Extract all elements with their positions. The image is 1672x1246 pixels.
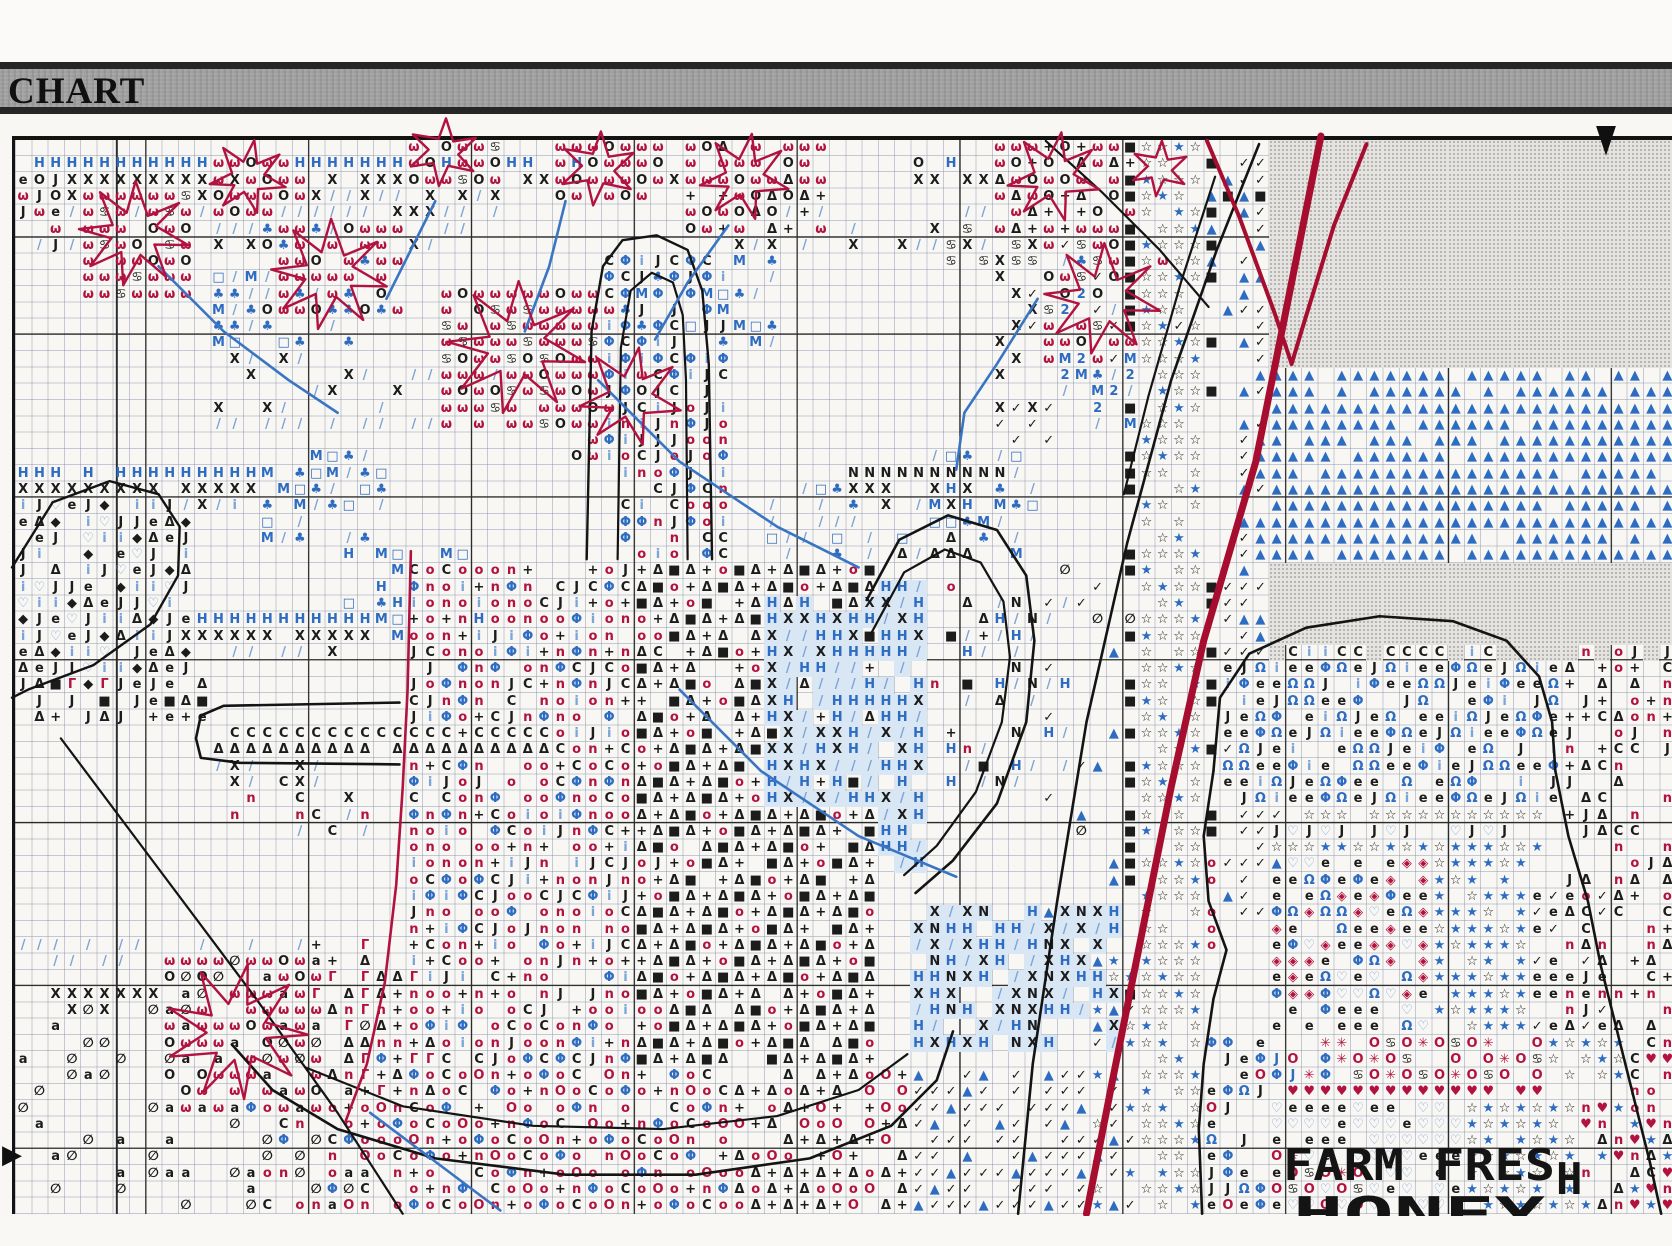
stitch-symbol: X [308, 628, 324, 644]
stitch-symbol: e [1269, 1019, 1285, 1035]
stitch-symbol: / [1041, 612, 1057, 628]
stitch-symbol: O [471, 173, 487, 189]
stitch-symbol [1350, 221, 1366, 237]
stitch-symbol: □ [341, 498, 357, 514]
stitch-symbol: ω [259, 1003, 275, 1019]
stitch-symbol: / [308, 775, 324, 791]
stitch-symbol: O [569, 173, 585, 189]
stitch-symbol: n [406, 921, 422, 937]
stitch-symbol: Ω [1236, 1084, 1252, 1100]
stitch-symbol: o [438, 645, 454, 661]
stitch-symbol: Δ [731, 1003, 747, 1019]
stitch-symbol: O [796, 1117, 812, 1133]
stitch-symbol: Δ [682, 1052, 698, 1068]
stitch-symbol: X [764, 628, 780, 644]
stitch-symbol: n [959, 742, 975, 758]
stitch-symbol: n [666, 531, 682, 547]
stitch-symbol: Δ [959, 547, 975, 563]
stitch-symbol: H [927, 970, 943, 986]
stitch-symbol: C [1594, 759, 1610, 775]
stitch-symbol: O [178, 254, 194, 270]
stitch-symbol: o [422, 1166, 438, 1182]
stitch-symbol: Ω [1464, 661, 1480, 677]
stitch-symbol: ω [503, 368, 519, 384]
stitch-symbol: o [943, 580, 959, 596]
stitch-symbol: i [1252, 775, 1268, 791]
stitch-symbol: ◈ [1285, 987, 1301, 1003]
stitch-symbol: i [1464, 645, 1480, 661]
stitch-symbol: X [145, 987, 161, 1003]
stitch-symbol: e [1350, 970, 1366, 986]
stitch-symbol: J [487, 889, 503, 905]
stitch-symbol: J [113, 677, 129, 693]
stitch-symbol: ■ [634, 661, 650, 677]
stitch-symbol: + [666, 1052, 682, 1068]
stitch-symbol: X [813, 645, 829, 661]
stitch-symbol: / [780, 205, 796, 221]
stitch-symbol: / [422, 417, 438, 433]
stitch-symbol [1350, 140, 1366, 156]
stitch-symbol: ★ [1138, 173, 1154, 189]
stitch-symbol: N [1008, 596, 1024, 612]
stitch-symbol: C [503, 1133, 519, 1149]
stitch-symbol: ω [764, 173, 780, 189]
stitch-symbol: X [129, 173, 145, 189]
stitch-symbol: e [1317, 759, 1333, 775]
stitch-symbol: e [1334, 742, 1350, 758]
stitch-symbol: ♡ [145, 596, 161, 612]
stitch-symbol: ♋ [1041, 303, 1057, 319]
stitch-symbol: ☆ [1464, 1019, 1480, 1035]
stitch-symbol: C [1610, 742, 1626, 758]
stitch-symbol: ■ [1252, 189, 1268, 205]
stitch-symbol: Δ [634, 775, 650, 791]
stitch-symbol: ♋ [1073, 270, 1089, 286]
stitch-symbol: X [210, 482, 226, 498]
stitch-symbol [1480, 238, 1496, 254]
stitch-symbol: Δ [845, 921, 861, 937]
stitch-symbol: + [634, 759, 650, 775]
stitch-symbol: ω [145, 189, 161, 205]
stitch-symbol: ✓ [1252, 335, 1268, 351]
stitch-symbol: X [796, 612, 812, 628]
stitch-symbol: ★ [1578, 1198, 1594, 1214]
stitch-symbol: e [80, 580, 96, 596]
stitch-symbol [1529, 205, 1545, 221]
stitch-symbol: ■ [1122, 694, 1138, 710]
stitch-symbol: ☆ [1155, 270, 1171, 286]
stitch-symbol: Γ [96, 677, 112, 693]
stitch-symbol: o [455, 710, 471, 726]
stitch-symbol: o [455, 873, 471, 889]
stitch-symbol: ☆ [1187, 580, 1203, 596]
stitch-symbol: + [682, 645, 698, 661]
stitch-symbol: 2 [1073, 352, 1089, 368]
stitch-symbol: Δ [780, 1052, 796, 1068]
stitch-symbol: e [1513, 677, 1529, 693]
stitch-symbol: □ [389, 547, 405, 563]
stitch-symbol: ♣ [210, 319, 226, 335]
stitch-symbol: Δ [1594, 1198, 1610, 1214]
stitch-symbol: ♡ [1415, 1019, 1431, 1035]
stitch-symbol: ▲ [1480, 482, 1496, 498]
stitch-symbol: ✓ [1122, 1133, 1138, 1149]
stitch-symbol: J [585, 726, 601, 742]
stitch-symbol: C [569, 661, 585, 677]
stitch-symbol: a [178, 987, 194, 1003]
stitch-symbol: o [536, 759, 552, 775]
stitch-symbol: ✓ [1008, 400, 1024, 416]
stitch-symbol: N [976, 905, 992, 921]
stitch-symbol: H [959, 1003, 975, 1019]
stitch-symbol: + [862, 1052, 878, 1068]
stitch-symbol: ☆ [1513, 1117, 1529, 1133]
stitch-symbol: / [976, 645, 992, 661]
stitch-symbol: ■ [845, 1035, 861, 1051]
stitch-symbol: e [1383, 1101, 1399, 1117]
stitch-symbol [1643, 612, 1659, 628]
stitch-symbol: ■ [862, 628, 878, 644]
stitch-symbol: C [650, 482, 666, 498]
stitch-symbol: e [1350, 661, 1366, 677]
stitch-symbol: ■ [666, 889, 682, 905]
stitch-symbol: ω [162, 270, 178, 286]
stitch-symbol: ✓ [1041, 1101, 1057, 1117]
stitch-symbol: ■ [650, 580, 666, 596]
stitch-symbol: ☆ [1187, 840, 1203, 856]
stitch-symbol: ☆ [1187, 270, 1203, 286]
stitch-symbol: ♥ [1659, 1198, 1672, 1214]
stitch-symbol: O [552, 287, 568, 303]
stitch-symbol: / [862, 726, 878, 742]
stitch-symbol: ∅ [308, 1035, 324, 1051]
stitch-symbol: Δ [666, 1003, 682, 1019]
stitch-symbol: Ω [1252, 661, 1268, 677]
stitch-symbol: ☆ [1138, 905, 1154, 921]
stitch-symbol: C [422, 1117, 438, 1133]
stitch-symbol [1578, 335, 1594, 351]
stitch-symbol: / [894, 856, 910, 872]
stitch-symbol: Δ [829, 1003, 845, 1019]
stitch-symbol [1659, 270, 1672, 286]
stitch-symbol: X [292, 775, 308, 791]
stitch-symbol: ☆ [1171, 221, 1187, 237]
stitch-symbol [1529, 645, 1545, 661]
stitch-symbol: X [341, 791, 357, 807]
stitch-symbol: + [748, 905, 764, 921]
stitch-symbol: n [601, 628, 617, 644]
stitch-symbol: ✓ [1073, 1182, 1089, 1198]
stitch-symbol: H [894, 840, 910, 856]
stitch-symbol: ♡ [1366, 1133, 1382, 1149]
stitch-symbol: / [275, 645, 291, 661]
stitch-symbol: ♋ [1301, 1166, 1317, 1182]
stitch-symbol: i [715, 400, 731, 416]
stitch-symbol: ✳ [1366, 1052, 1382, 1068]
stitch-symbol: J [1301, 824, 1317, 840]
stitch-symbol: H [943, 742, 959, 758]
stitch-symbol: + [813, 1084, 829, 1100]
stitch-symbol: C [1415, 645, 1431, 661]
stitch-symbol: ▲ [1464, 531, 1480, 547]
stitch-symbol: O [1024, 173, 1040, 189]
stitch-symbol: ■ [976, 759, 992, 775]
stitch-symbol: ♋ [943, 254, 959, 270]
stitch-symbol: Δ [780, 1133, 796, 1149]
stitch-symbol: ♥ [1399, 1084, 1415, 1100]
stitch-symbol: Φ [634, 1166, 650, 1182]
stitch-symbol: o [487, 1133, 503, 1149]
stitch-symbol: ■ [764, 856, 780, 872]
stitch-symbol: n [471, 694, 487, 710]
stitch-symbol: ☆ [1171, 563, 1187, 579]
stitch-symbol: Δ [1562, 661, 1578, 677]
stitch-symbol: ■ [1122, 287, 1138, 303]
stitch-symbol: ■ [1203, 156, 1219, 172]
stitch-symbol [1285, 335, 1301, 351]
stitch-symbol [1627, 612, 1643, 628]
stitch-symbol [1594, 645, 1610, 661]
stitch-symbol: ▲ [1610, 482, 1626, 498]
stitch-symbol: o [715, 694, 731, 710]
stitch-symbol: Ω [1317, 970, 1333, 986]
stitch-symbol: C [552, 1117, 568, 1133]
stitch-symbol: o [585, 1003, 601, 1019]
stitch-symbol: Δ [666, 873, 682, 889]
stitch-symbol: e [1301, 791, 1317, 807]
stitch-symbol: ω [129, 287, 145, 303]
stitch-symbol: H [227, 612, 243, 628]
stitch-symbol: ω [373, 254, 389, 270]
stitch-symbol: Δ [715, 791, 731, 807]
stitch-symbol: ☆ [1562, 1166, 1578, 1182]
stitch-symbol: ♥ [1643, 1182, 1659, 1198]
stitch-symbol: Δ [748, 205, 764, 221]
stitch-symbol: ◆ [80, 677, 96, 693]
stitch-symbol: ω [1106, 221, 1122, 237]
stitch-symbol [1431, 303, 1447, 319]
stitch-symbol: + [666, 791, 682, 807]
stitch-symbol: ☆ [1155, 335, 1171, 351]
stitch-symbol: Δ [813, 1166, 829, 1182]
stitch-symbol: / [813, 677, 829, 693]
stitch-symbol: X [1073, 921, 1089, 937]
stitch-symbol: ✓ [1594, 889, 1610, 905]
stitch-symbol [1578, 580, 1594, 596]
stitch-symbol: O [1464, 1035, 1480, 1051]
stitch-symbol: ☆ [1187, 140, 1203, 156]
stitch-symbol: Δ [845, 1068, 861, 1084]
stitch-symbol: ▲ [1415, 531, 1431, 547]
stitch-symbol: + [699, 954, 715, 970]
stitch-symbol: ▲ [1496, 433, 1512, 449]
stitch-symbol [1513, 352, 1529, 368]
stitch-symbol: ■ [1122, 449, 1138, 465]
stitch-symbol: + [1562, 677, 1578, 693]
stitch-symbol: o [536, 1035, 552, 1051]
stitch-symbol [1480, 189, 1496, 205]
stitch-symbol: O [455, 352, 471, 368]
stitch-symbol: ▲ [1562, 498, 1578, 514]
stitch-symbol: O [1350, 1052, 1366, 1068]
stitch-symbol [1301, 189, 1317, 205]
stitch-symbol: ω [162, 287, 178, 303]
stitch-symbol: ■ [1203, 238, 1219, 254]
stitch-symbol: Ω [1431, 677, 1447, 693]
stitch-symbol: ✓ [1529, 1019, 1545, 1035]
stitch-symbol: / [894, 661, 910, 677]
stitch-symbol: Δ [731, 840, 747, 856]
stitch-symbol [1350, 189, 1366, 205]
stitch-symbol: i [145, 498, 161, 514]
stitch-symbol: o [715, 498, 731, 514]
stitch-symbol: H [113, 156, 129, 172]
stitch-symbol: X [666, 173, 682, 189]
stitch-symbol: O [878, 1101, 894, 1117]
stitch-symbol: n [1610, 873, 1626, 889]
stitch-symbol: ∅ [96, 1068, 112, 1084]
stitch-symbol: Δ [682, 759, 698, 775]
stitch-symbol: M [259, 466, 275, 482]
stitch-symbol: ✓ [1252, 319, 1268, 335]
stitch-symbol: Δ [731, 580, 747, 596]
stitch-symbol: ◈ [1383, 921, 1399, 937]
stitch-symbol: ▲ [1415, 466, 1431, 482]
stitch-symbol [1431, 173, 1447, 189]
stitch-symbol: ■ [666, 563, 682, 579]
stitch-symbol: ★ [1187, 352, 1203, 368]
stitch-symbol: e [15, 173, 31, 189]
stitch-symbol [1334, 596, 1350, 612]
stitch-symbol: ω [243, 1052, 259, 1068]
stitch-symbol: ☆ [1155, 938, 1171, 954]
stitch-symbol: + [601, 645, 617, 661]
stitch-symbol: O [1513, 1052, 1529, 1068]
stitch-symbol: ✓ [1106, 1101, 1122, 1117]
stitch-symbol: n [536, 856, 552, 872]
stitch-symbol: n [585, 775, 601, 791]
stitch-symbol: o [796, 840, 812, 856]
stitch-symbol: Δ [780, 921, 796, 937]
stitch-symbol: ω [471, 287, 487, 303]
stitch-symbol [1562, 335, 1578, 351]
stitch-symbol: ▲ [1659, 498, 1672, 514]
stitch-symbol: n [243, 791, 259, 807]
stitch-symbol: Ω [1334, 921, 1350, 937]
stitch-symbol: Δ [666, 612, 682, 628]
stitch-symbol: + [976, 628, 992, 644]
stitch-symbol: e [162, 661, 178, 677]
stitch-symbol: / [1057, 759, 1073, 775]
stitch-symbol: ▲ [1236, 205, 1252, 221]
stitch-symbol [1480, 156, 1496, 172]
stitch-symbol: ✓ [1594, 905, 1610, 921]
stitch-symbol [1594, 270, 1610, 286]
stitch-symbol: J [1643, 856, 1659, 872]
stitch-symbol: Ω [1513, 661, 1529, 677]
stitch-symbol: ★ [1122, 1035, 1138, 1051]
stitch-symbol: ω [520, 319, 536, 335]
stitch-symbol: ★ [1513, 1133, 1529, 1149]
stitch-symbol: ♣ [976, 531, 992, 547]
stitch-symbol: Ω [1415, 677, 1431, 693]
stitch-symbol: / [292, 352, 308, 368]
stitch-symbol: ■ [731, 563, 747, 579]
stitch-symbol: ▲ [1383, 482, 1399, 498]
stitch-symbol: ☆ [1187, 791, 1203, 807]
stitch-symbol: ✓ [976, 1084, 992, 1100]
stitch-symbol: N [1008, 1035, 1024, 1051]
stitch-symbol [1610, 270, 1626, 286]
stitch-symbol: e [1399, 921, 1415, 937]
stitch-symbol: X [829, 612, 845, 628]
stitch-symbol: ■ [1122, 563, 1138, 579]
stitch-symbol [1594, 352, 1610, 368]
stitch-symbol: J [585, 1052, 601, 1068]
stitch-symbol: n [471, 987, 487, 1003]
stitch-symbol: ★ [1187, 938, 1203, 954]
stitch-symbol: o [520, 824, 536, 840]
stitch-symbol: O [862, 1182, 878, 1198]
stitch-symbol: ★ [1513, 856, 1529, 872]
stitch-symbol: N [1041, 970, 1057, 986]
stitch-symbol: Δ [682, 1019, 698, 1035]
stitch-symbol: ω [1073, 319, 1089, 335]
stitch-symbol: Φ [617, 254, 633, 270]
stitch-symbol: Δ [634, 905, 650, 921]
stitch-symbol: H [438, 156, 454, 172]
stitch-symbol: O [536, 1133, 552, 1149]
stitch-symbol: ☆ [1317, 807, 1333, 823]
stitch-symbol: o [1203, 873, 1219, 889]
stitch-symbol: ◈ [1415, 970, 1431, 986]
stitch-symbol [1399, 287, 1415, 303]
stitch-symbol [1594, 189, 1610, 205]
stitch-symbol: / [959, 954, 975, 970]
stitch-symbol: X [1089, 905, 1105, 921]
stitch-symbol: n [406, 987, 422, 1003]
stitch-symbol: + [699, 889, 715, 905]
stitch-symbol: ω [227, 1068, 243, 1084]
stitch-symbol: o [292, 1198, 308, 1214]
stitch-symbol: Δ [1578, 938, 1594, 954]
stitch-symbol: Φ [617, 1084, 633, 1100]
stitch-symbol [1496, 205, 1512, 221]
stitch-symbol: ▲ [1480, 368, 1496, 384]
stitch-symbol: ☆ [1496, 856, 1512, 872]
stitch-symbol: o [422, 628, 438, 644]
stitch-symbol: □ [682, 319, 698, 335]
stitch-symbol: X [764, 238, 780, 254]
stitch-symbol: O [569, 1166, 585, 1182]
stitch-symbol: n [1578, 645, 1594, 661]
stitch-symbol: ♡ [96, 645, 112, 661]
stitch-symbol: 2 [1106, 384, 1122, 400]
stitch-symbol: o [1627, 710, 1643, 726]
stitch-symbol: n [487, 1068, 503, 1084]
stitch-symbol: ω [210, 1068, 226, 1084]
stitch-symbol: C [487, 726, 503, 742]
stitch-symbol: o [487, 1019, 503, 1035]
stitch-symbol: 2 [1122, 368, 1138, 384]
stitch-symbol: ☆ [1480, 1182, 1496, 1198]
stitch-symbol: ▲ [1334, 547, 1350, 563]
stitch-symbol: ▲ [1089, 759, 1105, 775]
stitch-symbol: ♣ [959, 449, 975, 465]
stitch-symbol: ◆ [113, 580, 129, 596]
stitch-symbol: / [357, 417, 373, 433]
stitch-symbol: Φ [520, 1052, 536, 1068]
